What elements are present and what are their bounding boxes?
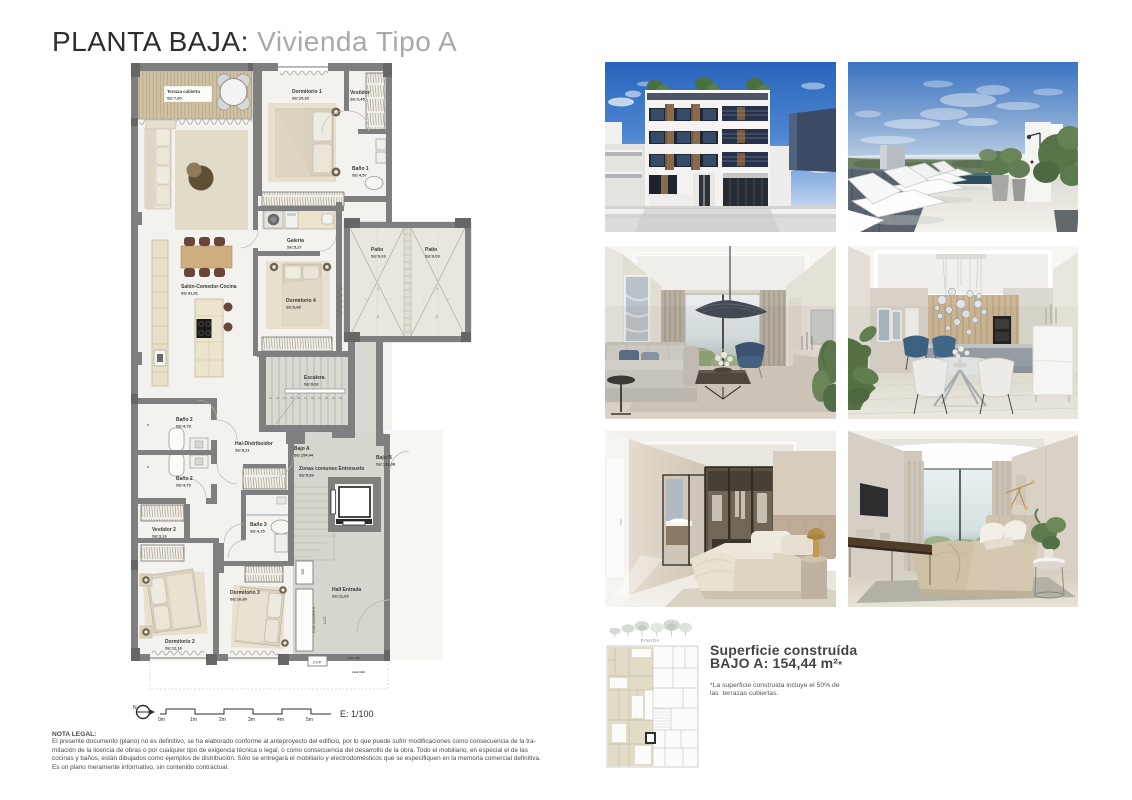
svg-text:↔: ↔ (364, 296, 368, 301)
svg-text:SU:7,60: SU:7,60 (167, 96, 182, 101)
svg-text:cota 3,90: cota 3,90 (352, 670, 365, 674)
svg-text:17: 17 (304, 396, 308, 400)
svg-text:SU:154,44: SU:154,44 (294, 453, 314, 458)
svg-text:Bajo B: Bajo B (376, 455, 392, 461)
svg-text:Dormitorio 3: Dormitorio 3 (230, 590, 260, 596)
svg-text:15: 15 (290, 396, 294, 400)
svg-text:Zonas comunes Entresuelo: Zonas comunes Entresuelo (299, 466, 364, 472)
svg-text:1m: 1m (190, 717, 197, 723)
svg-text:N: N (133, 705, 137, 711)
svg-text:22: 22 (339, 396, 343, 400)
svg-text:12: 12 (269, 396, 273, 400)
svg-text:4m: 4m (277, 717, 284, 723)
svg-text:Terraza cubierta: Terraza cubierta (167, 89, 200, 94)
svg-text:⚲: ⚲ (436, 314, 439, 319)
svg-text:SU:3,45: SU:3,45 (350, 97, 365, 102)
svg-text:⚔: ⚔ (376, 286, 380, 291)
svg-text:Bajo A: Bajo A (294, 446, 310, 452)
svg-text:SU:41,01: SU:41,01 (181, 291, 199, 296)
svg-text:SU:10,60: SU:10,60 (230, 597, 248, 602)
svg-text:5m: 5m (306, 717, 313, 723)
svg-text:SU:9,03: SU:9,03 (371, 254, 386, 259)
svg-text:18: 18 (311, 396, 315, 400)
svg-text:2m: 2m (219, 717, 226, 723)
svg-text:Patio: Patio (425, 247, 437, 253)
svg-text:SU:15,20: SU:15,20 (292, 96, 310, 101)
svg-text:Baño 3: Baño 3 (250, 522, 267, 528)
svg-text:20: 20 (325, 396, 329, 400)
svg-text:SU:9,03: SU:9,03 (425, 254, 440, 259)
svg-text:SU:132,08: SU:132,08 (376, 462, 396, 467)
svg-text:CGP: CGP (313, 660, 322, 665)
svg-text:Baño 2: Baño 2 (176, 417, 193, 423)
svg-text:Vestidor 2: Vestidor 2 (152, 527, 176, 533)
svg-text:Galería: Galería (287, 238, 304, 244)
svg-text:⚲: ⚲ (377, 314, 380, 319)
svg-text:SU:9,98: SU:9,98 (286, 305, 301, 310)
svg-text:0m: 0m (158, 717, 165, 723)
svg-text:SU:5,27: SU:5,27 (287, 245, 302, 250)
svg-text:SU:5,89: SU:5,89 (299, 473, 314, 478)
svg-text:⚔: ⚔ (435, 286, 439, 291)
svg-text:Vestidor: Vestidor (350, 90, 370, 96)
svg-text:↔: ↔ (446, 296, 450, 301)
svg-text:SU:4,79: SU:4,79 (176, 483, 191, 488)
svg-text:SU:3,16: SU:3,16 (152, 534, 167, 539)
svg-text:SU:4,57: SU:4,57 (352, 173, 367, 178)
svg-text:SU:12,16: SU:12,16 (165, 646, 183, 651)
svg-text:Dormitorio 1: Dormitorio 1 (292, 89, 322, 95)
svg-text:SU:9,92: SU:9,92 (304, 382, 319, 387)
svg-text:↔: ↔ (422, 296, 426, 301)
svg-text:SU:11,60: SU:11,60 (332, 594, 349, 599)
svg-text:19: 19 (318, 396, 322, 400)
svg-text:Patio: Patio (371, 247, 383, 253)
svg-text:Escalera: Escalera (304, 375, 325, 381)
svg-text:Salón-Comedor-Cocina: Salón-Comedor-Cocina (181, 284, 237, 290)
svg-text:PINADA: PINADA (641, 638, 660, 643)
svg-text:13: 13 (276, 396, 280, 400)
svg-text:SU:9,21: SU:9,21 (235, 448, 250, 453)
svg-text:BIE: BIE (301, 568, 305, 574)
svg-text:21: 21 (332, 396, 336, 400)
svg-text:↔: ↔ (388, 296, 392, 301)
svg-text:Dormitorio 4: Dormitorio 4 (286, 298, 316, 304)
svg-text:16: 16 (297, 396, 301, 400)
svg-text:14: 14 (283, 396, 287, 400)
svg-text:SU:4,79: SU:4,79 (176, 424, 191, 429)
svg-text:cota 4,80: cota 4,80 (347, 656, 360, 660)
svg-text:3m: 3m (248, 717, 255, 723)
svg-text:Baño 1: Baño 1 (352, 166, 369, 172)
svg-text:Dormitorio 2: Dormitorio 2 (165, 639, 195, 645)
svg-text:LUZ: LUZ (323, 616, 327, 624)
svg-text:E: 1/100: E: 1/100 (340, 709, 374, 719)
svg-text:Hall Entrada: Hall Entrada (332, 587, 361, 593)
svg-text:Baño 2: Baño 2 (176, 476, 193, 482)
svg-text:SU:4,15: SU:4,15 (250, 529, 265, 534)
svg-text:Hal-Distribuidor: Hal-Distribuidor (235, 441, 273, 447)
svg-text:CONTADORES: CONTADORES (312, 606, 316, 633)
